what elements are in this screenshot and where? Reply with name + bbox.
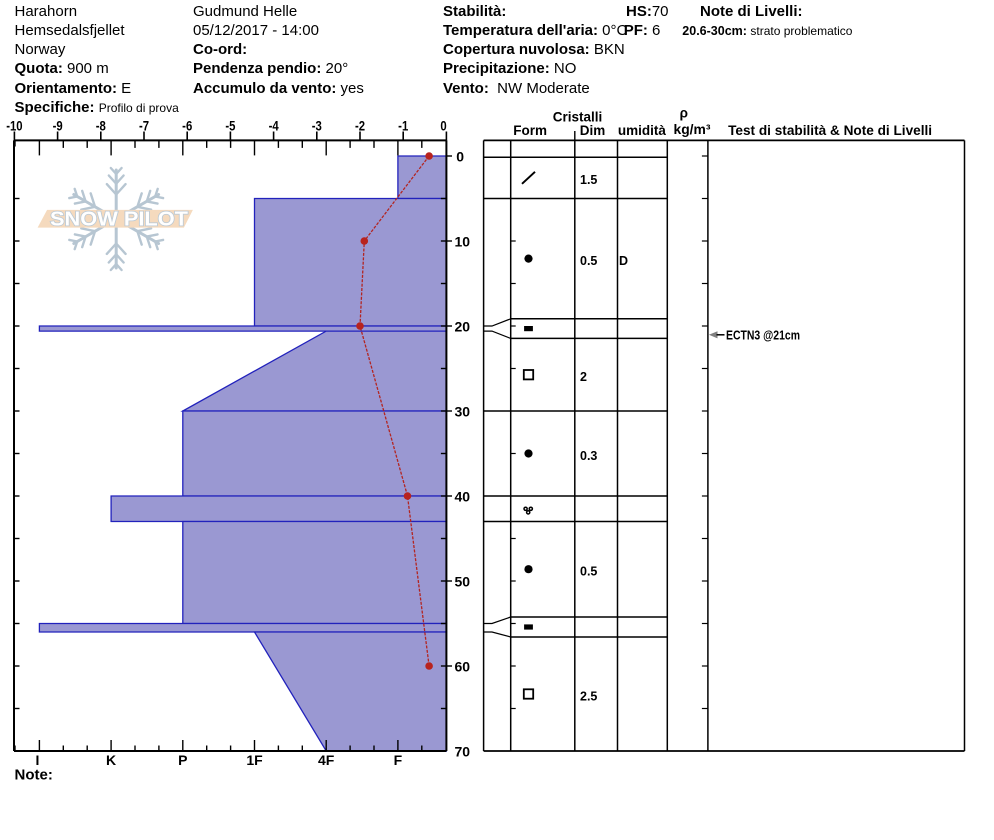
svg-text:ρ: ρ [680, 106, 688, 121]
svg-text:-6: -6 [182, 119, 192, 134]
svg-text:1F: 1F [246, 752, 263, 768]
svg-text:Note:: Note: [15, 767, 53, 784]
svg-text:10: 10 [455, 234, 471, 250]
svg-text:70: 70 [455, 744, 471, 760]
svg-text:20: 20 [455, 319, 471, 335]
svg-text:ECTN3 @21cm: ECTN3 @21cm [726, 328, 800, 342]
svg-text:60: 60 [455, 659, 471, 675]
svg-text:-1: -1 [398, 119, 408, 134]
svg-text:40: 40 [455, 489, 471, 505]
svg-text:4F: 4F [318, 752, 335, 768]
svg-text:30: 30 [455, 404, 471, 420]
svg-text:50: 50 [455, 574, 471, 590]
svg-text:-2: -2 [355, 119, 365, 134]
svg-text:-7: -7 [139, 119, 149, 134]
svg-text:-3: -3 [312, 119, 322, 134]
svg-text:-9: -9 [53, 119, 63, 134]
svg-text:-8: -8 [96, 119, 106, 134]
svg-text:K: K [106, 752, 116, 768]
svg-text:umidità: umidità [618, 123, 666, 138]
svg-text:-10: -10 [6, 119, 22, 134]
svg-text:SNOW PILOT: SNOW PILOT [50, 209, 188, 231]
svg-text:D: D [619, 254, 628, 268]
svg-text:0.5: 0.5 [580, 254, 597, 268]
svg-text:Dim: Dim [580, 123, 606, 138]
svg-text:0: 0 [456, 149, 464, 165]
svg-text:F: F [394, 752, 403, 768]
svg-text:-4: -4 [269, 119, 279, 134]
svg-text:2.5: 2.5 [580, 689, 597, 703]
svg-text:0.3: 0.3 [580, 449, 597, 463]
svg-text:P: P [178, 752, 187, 768]
svg-text:Form: Form [513, 123, 547, 138]
svg-text:kg/m³: kg/m³ [674, 122, 712, 137]
svg-text:0: 0 [440, 119, 446, 134]
svg-text:2: 2 [580, 370, 587, 384]
svg-text:1.5: 1.5 [580, 173, 597, 187]
svg-text:0.5: 0.5 [580, 565, 597, 579]
svg-text:-5: -5 [225, 119, 235, 134]
svg-text:Test di stabilità & Note di Li: Test di stabilità & Note di Livelli [728, 123, 932, 138]
